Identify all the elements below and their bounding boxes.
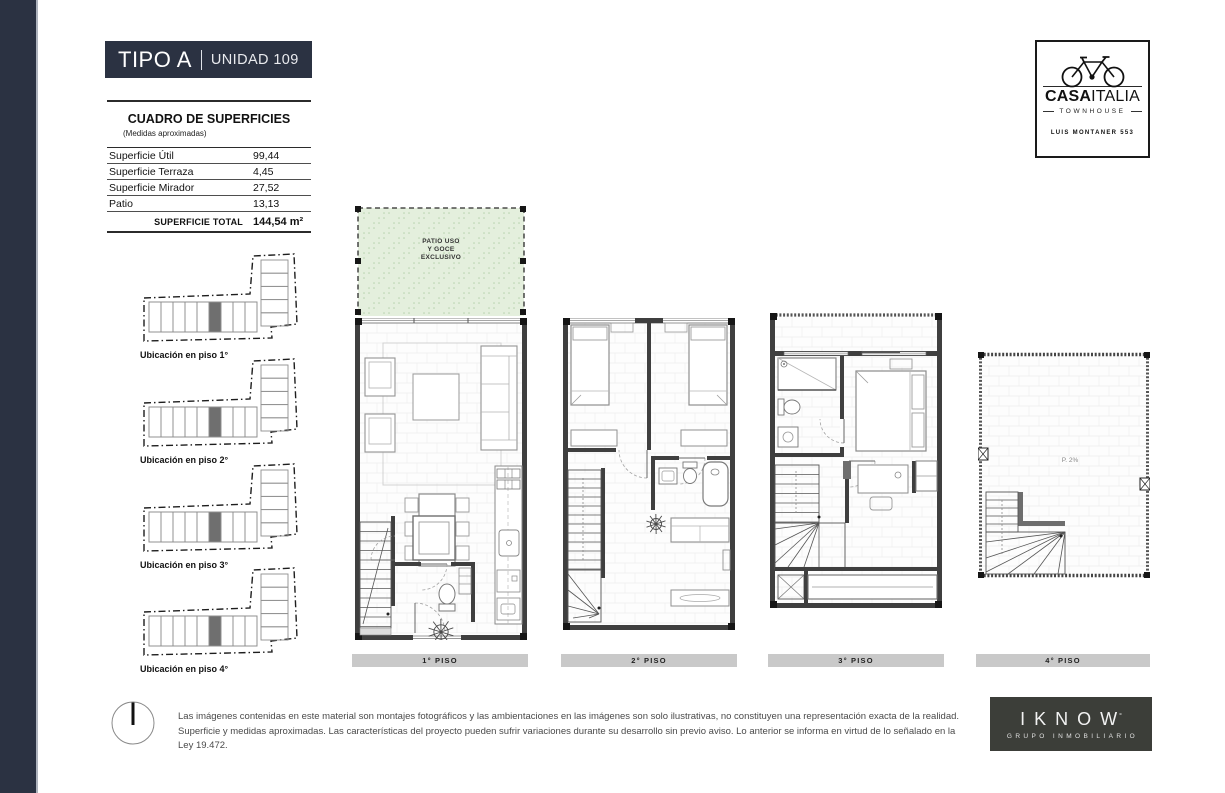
floor-plan-1 — [355, 318, 527, 640]
unit-type-label: TIPO A — [118, 47, 192, 73]
building-outline-map — [122, 357, 307, 449]
floor-label-4: 4° PISO — [976, 654, 1150, 667]
row-value: 99,44 — [253, 150, 311, 162]
floor-label-2: 2° PISO — [561, 654, 737, 667]
total-label: SUPERFICIE TOTAL — [107, 217, 253, 227]
patio-label-line: PATIO USO — [355, 238, 527, 246]
unit-number-label: UNIDAD 109 — [211, 52, 299, 68]
location-diagram-piso-1: Ubicación en piso 1° — [122, 252, 307, 360]
developer-logo: IKNOW° GRUPO INMOBILIARIO — [990, 697, 1152, 751]
brochure-page: TIPO A UNIDAD 109 CASAITALIA TOWNHOUSE L… — [0, 0, 1225, 793]
svg-text:P. 2%: P. 2% — [1062, 457, 1079, 464]
developer-subtitle: GRUPO INMOBILIARIO — [1004, 733, 1138, 740]
brand-name-light: ITALIA — [1091, 88, 1140, 105]
brand-logo-card: CASAITALIA TOWNHOUSE LUIS MONTANER 553 — [1035, 40, 1150, 158]
table-row: Patio 13,13 — [107, 196, 311, 212]
developer-name-text: IKNOW — [1020, 709, 1126, 729]
row-label: Patio — [107, 198, 253, 210]
floor-plan-3 — [770, 313, 942, 608]
disclaimer-text: Las imágenes contenidas en este material… — [178, 710, 960, 754]
row-value: 13,13 — [253, 198, 311, 210]
location-caption: Ubicación en piso 4° — [122, 664, 307, 674]
bicycle-icon — [1057, 49, 1129, 89]
row-value: 27,52 — [253, 182, 311, 194]
patio-area: PATIO USO Y GOCE EXCLUSIVO — [355, 206, 527, 318]
surface-table-title: CUADRO DE SUPERFICIES — [107, 112, 311, 126]
row-label: Superficie Útil — [107, 150, 253, 162]
brand-name: CASAITALIA — [1037, 88, 1148, 106]
floor-label-3: 3° PISO — [768, 654, 944, 667]
building-outline-map — [122, 252, 307, 344]
floor-label-1: 1° PISO — [352, 654, 528, 667]
developer-trademark: ° — [1119, 713, 1131, 720]
brand-name-bold: CASA — [1045, 88, 1091, 105]
floor-plan-4: P. 2% — [978, 352, 1150, 578]
patio-label-line: EXCLUSIVO — [355, 254, 527, 262]
row-label: Superficie Terraza — [107, 166, 253, 178]
row-label: Superficie Mirador — [107, 182, 253, 194]
brand-address: LUIS MONTANER 553 — [1037, 130, 1148, 136]
subtitle-dash-left — [1043, 111, 1054, 112]
table-row: Superficie Útil 99,44 — [107, 148, 311, 164]
brand-subtitle-row: TOWNHOUSE — [1037, 108, 1148, 115]
patio-label: PATIO USO Y GOCE EXCLUSIVO — [355, 238, 527, 262]
table-row: Superficie Mirador 27,52 — [107, 180, 311, 196]
building-outline-map — [122, 462, 307, 554]
location-diagram-piso-4: Ubicación en piso 4° — [122, 566, 307, 674]
surface-table-subtitle: (Medidas aproximadas) — [123, 129, 311, 138]
developer-name: IKNOW° — [1011, 709, 1131, 730]
title-divider — [201, 50, 202, 70]
north-indicator-icon — [110, 700, 156, 746]
unit-title-box: TIPO A UNIDAD 109 — [105, 41, 312, 78]
left-accent-bar — [0, 0, 38, 793]
surface-table-total-row: SUPERFICIE TOTAL 144,54 m² — [107, 212, 311, 233]
building-outline-map — [122, 566, 307, 658]
patio-label-line: Y GOCE — [355, 246, 527, 254]
location-diagram-piso-2: Ubicación en piso 2° — [122, 357, 307, 465]
patio-drawing — [355, 206, 527, 318]
surface-table: CUADRO DE SUPERFICIES (Medidas aproximad… — [107, 100, 311, 233]
location-diagram-piso-3: Ubicación en piso 3° — [122, 462, 307, 570]
subtitle-dash-right — [1131, 111, 1142, 112]
total-value: 144,54 m² — [253, 216, 311, 228]
row-value: 4,45 — [253, 166, 311, 178]
surface-table-rows: Superficie Útil 99,44 Superficie Terraza… — [107, 147, 311, 212]
logo-ground-line — [1043, 86, 1142, 87]
table-row: Superficie Terraza 4,45 — [107, 164, 311, 180]
floor-plan-2 — [563, 318, 735, 630]
brand-subtitle: TOWNHOUSE — [1059, 108, 1125, 115]
